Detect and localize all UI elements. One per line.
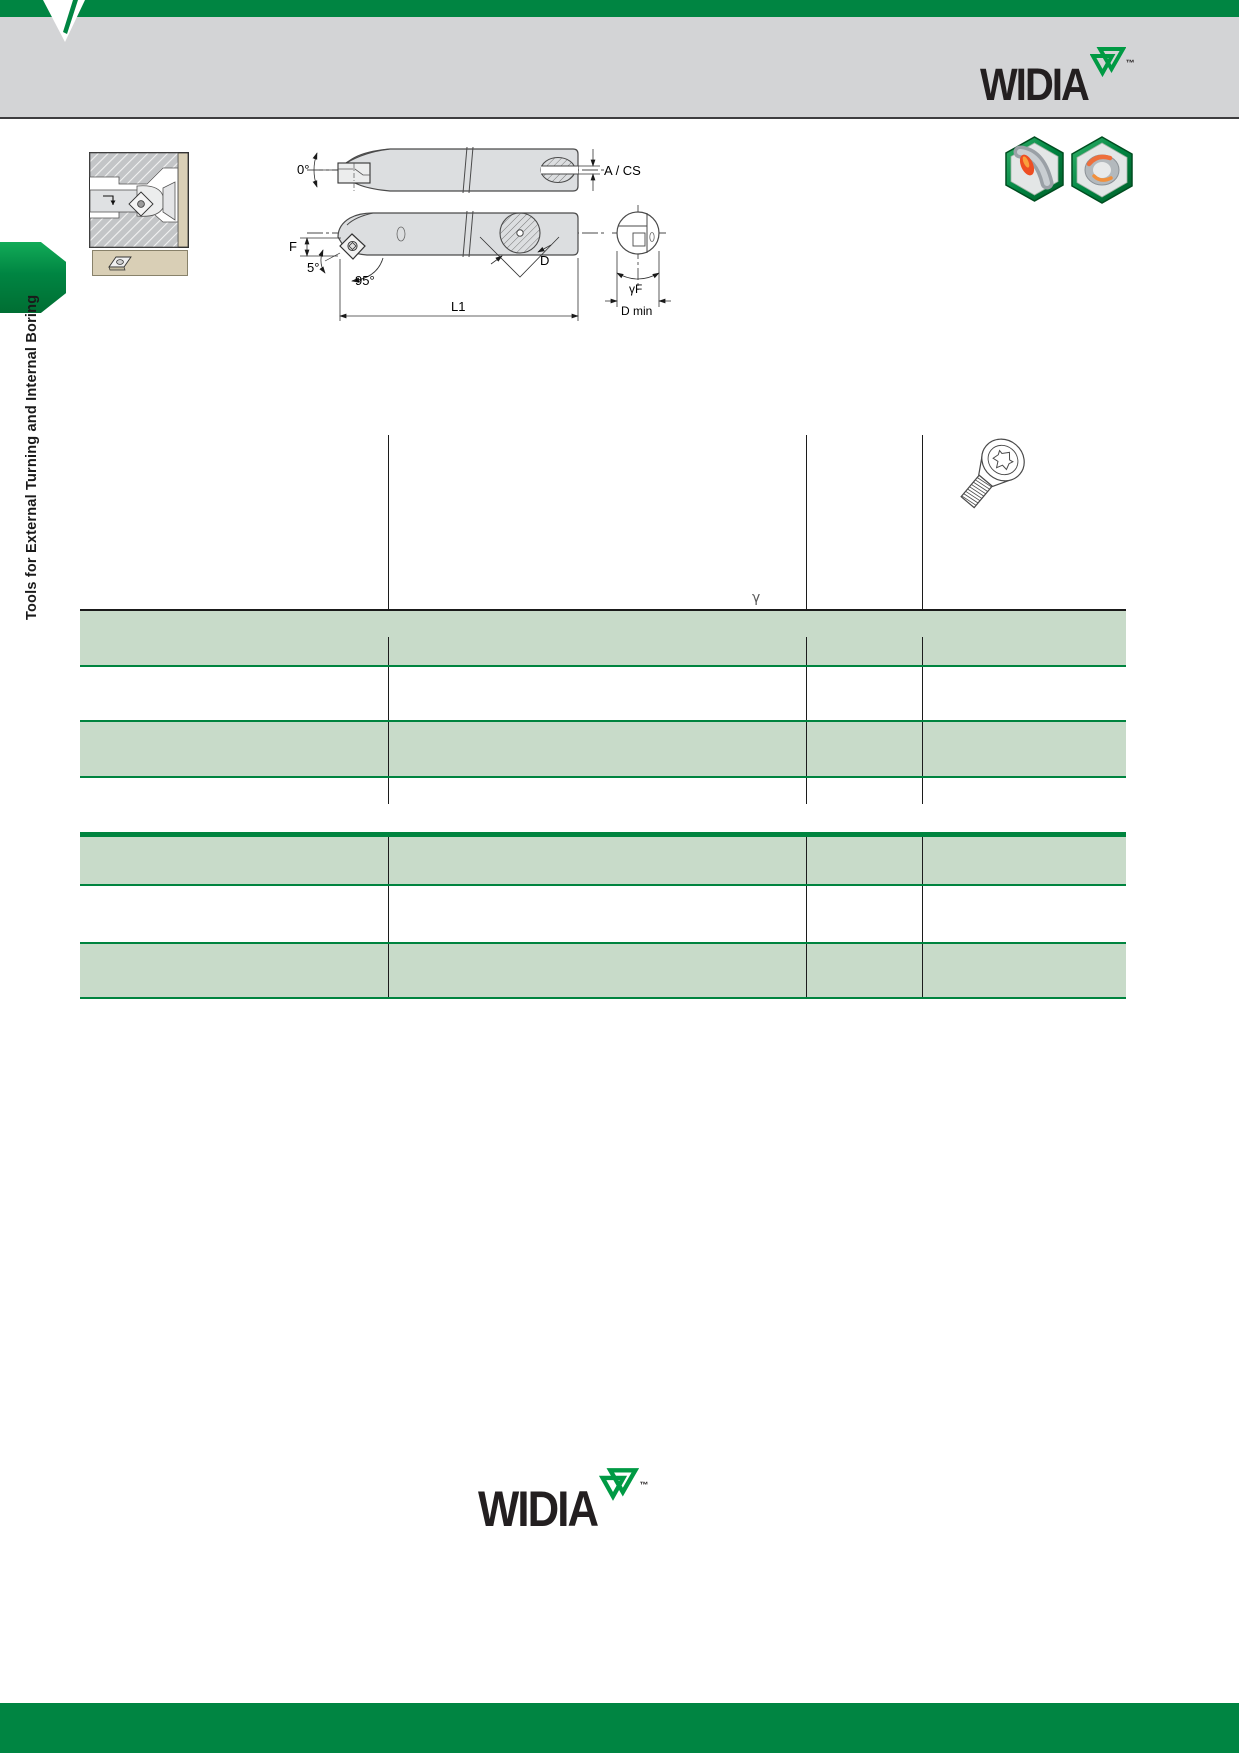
- gamma-symbol: γ: [752, 590, 760, 606]
- table2-bottom-border: [80, 997, 1126, 999]
- widia-notch-icon: [40, 0, 92, 46]
- widia-logo-bottom: WIDIA ™: [478, 1484, 648, 1530]
- dimension-table-2: [80, 832, 1126, 999]
- label-lead: 95°: [355, 273, 375, 288]
- brand-wordmark: WIDIA: [980, 62, 1088, 107]
- header-column-rule-1: [388, 435, 389, 609]
- widia-double-triangle-icon: [599, 1467, 639, 1503]
- table2-row-3: [80, 944, 1126, 997]
- header-column-rule-3: [922, 435, 923, 609]
- table1-row-1: [80, 611, 1126, 665]
- table1-row-2: [80, 667, 1126, 720]
- insert-id-box: [92, 250, 188, 276]
- table1-row-3: [80, 722, 1126, 776]
- tool-dimension-drawing: A / CS 0° D F 5° 95°: [255, 125, 675, 325]
- sidebar-section-label: Tools for External Turning and Internal …: [24, 330, 46, 620]
- widia-logo-top: WIDIA ™: [980, 62, 1135, 104]
- brand-wordmark: WIDIA: [478, 1484, 597, 1534]
- widia-double-triangle-icon: [1090, 46, 1126, 79]
- header-column-rule-2: [806, 435, 807, 609]
- label-gamma-f: γF: [629, 282, 642, 296]
- table1-row-4: [80, 778, 1126, 804]
- label-a-cs: A / CS: [604, 163, 641, 178]
- application-thumbnail: [89, 152, 189, 248]
- label-d: D: [540, 253, 549, 268]
- dimension-table-1: [80, 609, 1126, 804]
- label-f: F: [289, 239, 297, 254]
- catalog-page: WIDIA ™ Tools for External Turning and I…: [0, 0, 1239, 1753]
- top-green-bar: [0, 0, 1239, 17]
- table2-row-1: [80, 837, 1126, 884]
- turning-operation-icon: [1004, 136, 1065, 202]
- boring-operation-icon: [1070, 136, 1134, 204]
- trademark-symbol: ™: [1126, 58, 1135, 68]
- label-rake-angle: 0°: [297, 162, 309, 177]
- label-l1: L1: [451, 299, 465, 314]
- table2-row-2: [80, 886, 1126, 942]
- torx-screw-icon: [945, 430, 1040, 525]
- label-d-min: D min: [621, 304, 652, 318]
- trademark-symbol: ™: [639, 1480, 648, 1490]
- bottom-green-bar: [0, 1703, 1239, 1753]
- label-clearance: 5°: [307, 260, 319, 275]
